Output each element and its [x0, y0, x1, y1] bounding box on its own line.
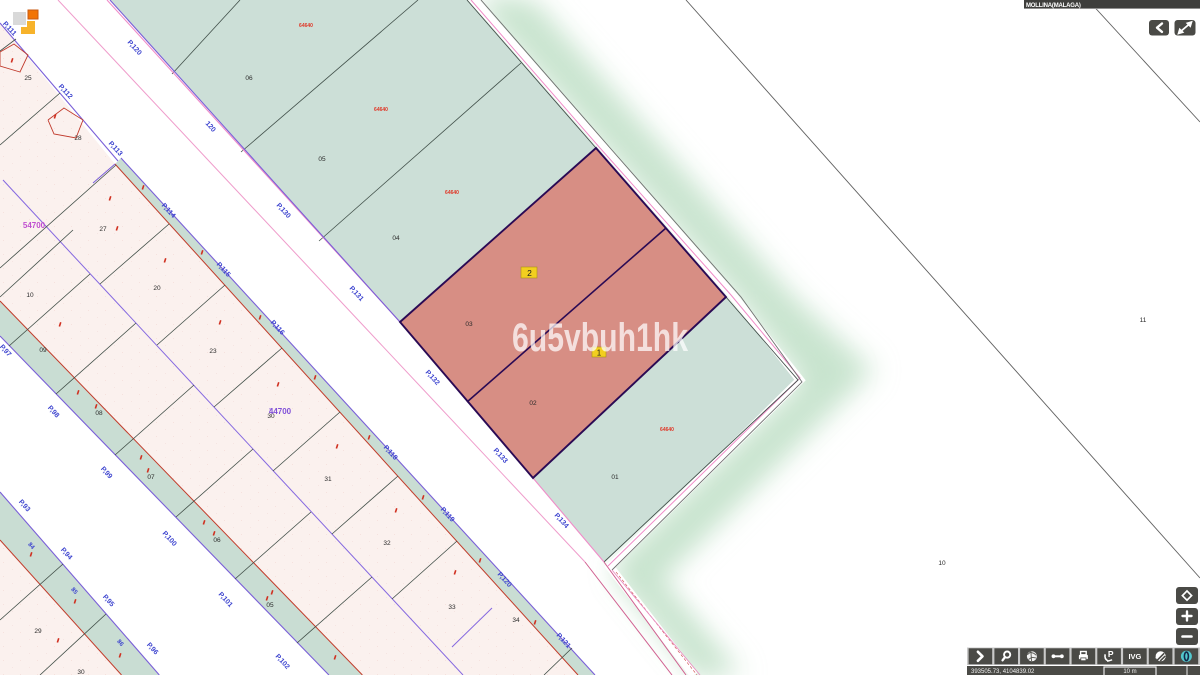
svg-text:2: 2 [527, 268, 532, 278]
svg-text:03: 03 [465, 321, 473, 328]
svg-text:33: 33 [448, 604, 456, 611]
svg-text:07: 07 [147, 474, 155, 481]
svg-text:02: 02 [529, 400, 537, 407]
svg-text:23: 23 [209, 348, 217, 355]
svg-text:05: 05 [318, 156, 326, 163]
svg-text:34: 34 [512, 617, 520, 624]
svg-text:64640: 64640 [374, 107, 388, 113]
svg-text:08: 08 [95, 410, 103, 417]
svg-text:10: 10 [938, 560, 946, 567]
svg-text:IVG: IVG [1128, 652, 1141, 661]
svg-text:09: 09 [39, 347, 47, 354]
svg-text:10: 10 [26, 292, 34, 299]
svg-text:↑: ↑ [268, 407, 272, 414]
svg-text:32: 32 [383, 540, 391, 547]
svg-text:27: 27 [99, 226, 107, 233]
svg-text:MOLLINA(MALAGA): MOLLINA(MALAGA) [1026, 3, 1081, 9]
svg-text:30: 30 [77, 669, 85, 675]
svg-text:25: 25 [24, 75, 32, 82]
svg-text:P: P [1108, 649, 1114, 659]
svg-text:31: 31 [324, 476, 332, 483]
svg-text:10 m: 10 m [1123, 669, 1136, 675]
svg-text:64640: 64640 [445, 190, 459, 196]
svg-text:20: 20 [153, 285, 161, 292]
svg-text:28: 28 [74, 135, 82, 142]
svg-text:54700: 54700 [23, 221, 46, 230]
svg-text:44700: 44700 [269, 407, 292, 416]
svg-text:06: 06 [213, 537, 221, 544]
svg-text:06: 06 [245, 75, 253, 82]
svg-text:64640: 64640 [660, 427, 674, 433]
svg-text:05: 05 [266, 602, 274, 609]
svg-text:01: 01 [611, 474, 619, 481]
svg-text:64640: 64640 [299, 23, 313, 29]
svg-text:6u5vbuh1hk: 6u5vbuh1hk [512, 316, 689, 360]
svg-text:04: 04 [392, 235, 400, 242]
svg-text:11: 11 [1140, 317, 1147, 324]
svg-text:29: 29 [34, 628, 42, 635]
svg-text:393505.73, 4104839.02: 393505.73, 4104839.02 [971, 669, 1035, 675]
